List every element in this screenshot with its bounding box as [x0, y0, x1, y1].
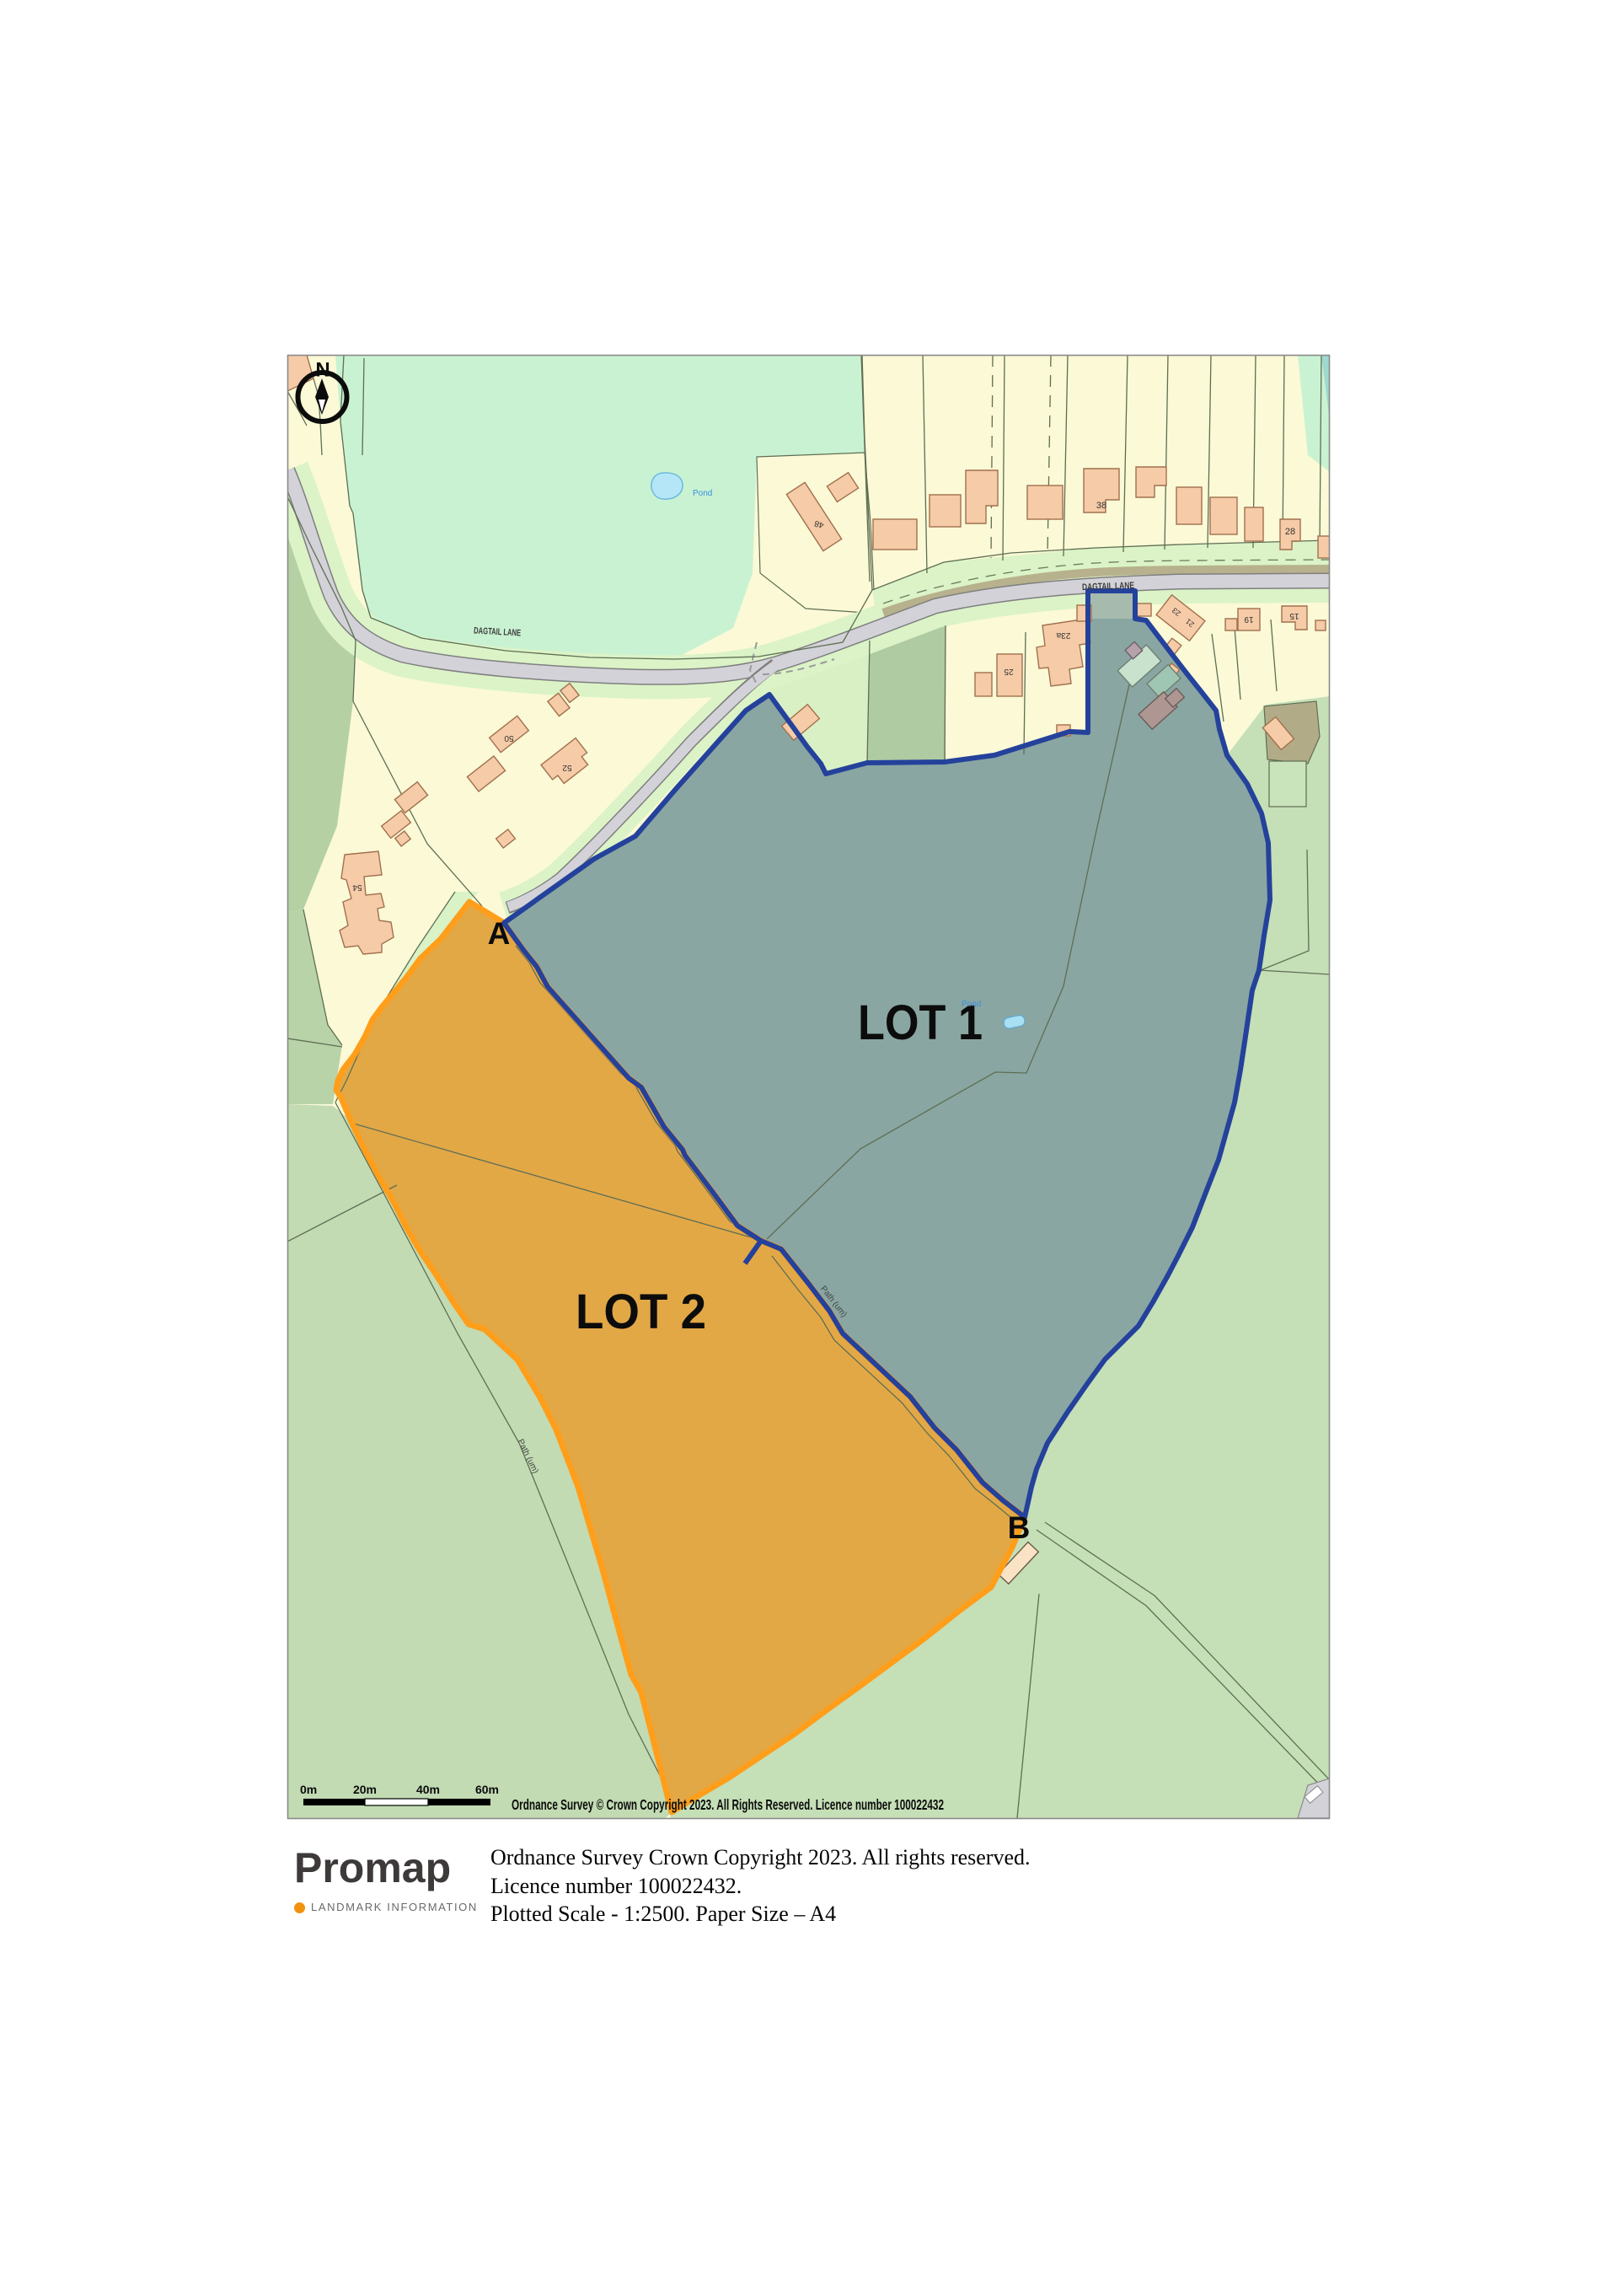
svg-text:15: 15	[1289, 611, 1299, 620]
svg-text:23a: 23a	[1056, 630, 1070, 640]
svg-text:50: 50	[504, 733, 514, 743]
svg-text:0m: 0m	[300, 1783, 317, 1796]
svg-text:38: 38	[1096, 501, 1106, 511]
svg-text:19: 19	[1244, 614, 1254, 624]
svg-text:N: N	[315, 359, 329, 382]
svg-text:LOT 2: LOT 2	[576, 1285, 706, 1339]
svg-text:DAGTAIL LANE: DAGTAIL LANE	[1082, 581, 1134, 593]
svg-text:Pond: Pond	[962, 1000, 981, 1009]
svg-text:52: 52	[562, 763, 572, 772]
svg-text:40m: 40m	[416, 1783, 440, 1796]
svg-text:25: 25	[1004, 667, 1014, 676]
svg-text:20m: 20m	[353, 1783, 377, 1796]
svg-text:B: B	[1008, 1510, 1031, 1545]
svg-text:54: 54	[352, 882, 362, 892]
svg-text:A: A	[488, 916, 511, 951]
svg-text:28: 28	[1285, 527, 1295, 537]
svg-text:Ordnance Survey © Crown Copyri: Ordnance Survey © Crown Copyright 2023. …	[512, 1796, 944, 1813]
svg-text:60m: 60m	[475, 1783, 499, 1796]
svg-text:Pond: Pond	[693, 489, 712, 498]
